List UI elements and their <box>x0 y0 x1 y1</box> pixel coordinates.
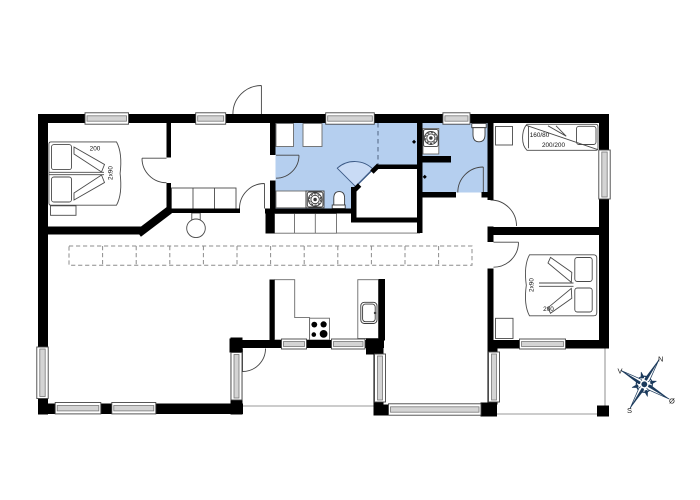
svg-text:2x90: 2x90 <box>529 278 536 292</box>
svg-text:N: N <box>658 355 663 364</box>
svg-text:S: S <box>627 406 632 415</box>
svg-text:Ø: Ø <box>669 397 675 406</box>
svg-text:200/200: 200/200 <box>542 142 566 149</box>
svg-text:V: V <box>618 367 623 376</box>
svg-text:200: 200 <box>90 146 101 153</box>
svg-text:160/80: 160/80 <box>530 132 550 139</box>
svg-text:200: 200 <box>543 306 554 313</box>
svg-text:2x90: 2x90 <box>108 166 115 180</box>
